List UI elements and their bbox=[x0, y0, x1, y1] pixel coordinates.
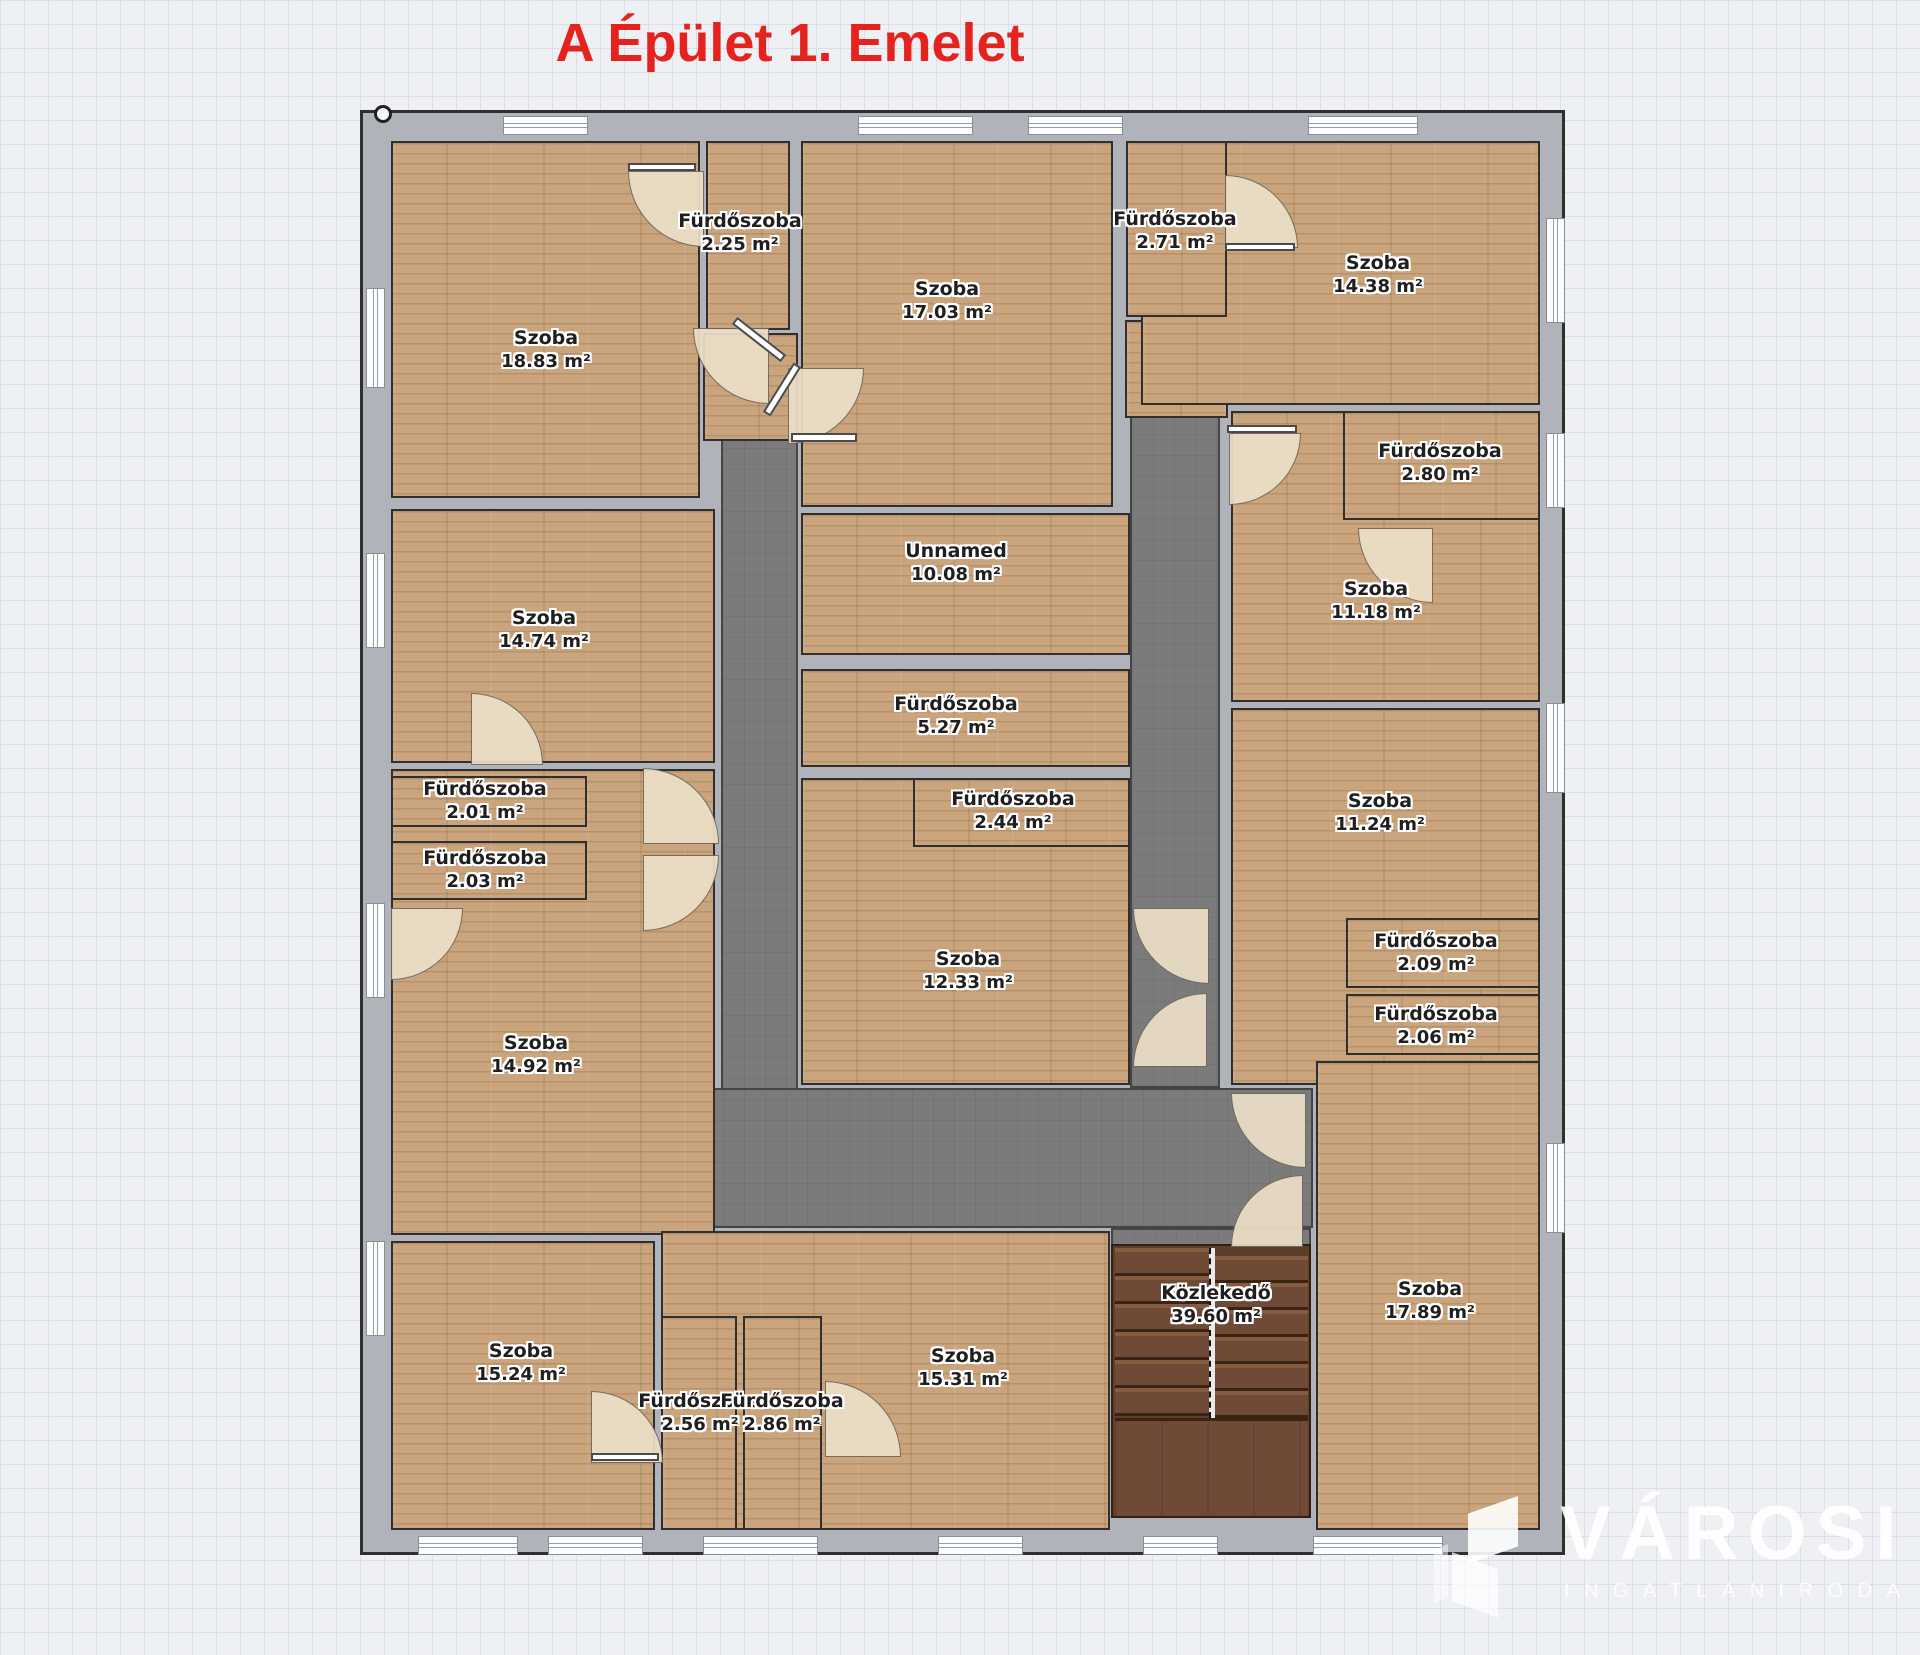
room-area: 10.08 m² bbox=[905, 564, 1007, 587]
room-label-szoba-15-31: Szoba15.31 m² bbox=[918, 1345, 1008, 1391]
room-label-szoba-11-24: Szoba11.24 m² bbox=[1335, 790, 1425, 836]
window bbox=[1546, 218, 1565, 323]
corridor bbox=[1130, 413, 1220, 1088]
stair-divider bbox=[1209, 1248, 1215, 1418]
room-area: 2.86 m² bbox=[720, 1414, 843, 1437]
room-area: 2.25 m² bbox=[678, 234, 801, 257]
room-area: 5.27 m² bbox=[894, 717, 1017, 740]
room-area: 14.92 m² bbox=[491, 1056, 581, 1079]
room-label-kozlekedo: Közlekedő39.60 m² bbox=[1161, 1282, 1271, 1328]
room-name: Fürdőszoba bbox=[1378, 440, 1501, 464]
room-name: Szoba bbox=[1385, 1278, 1475, 1302]
door-leaf bbox=[591, 1453, 659, 1461]
watermark-subtitle: INGATLANIRODA bbox=[1564, 1580, 1914, 1603]
watermark: VÁROSI INGATLANIRODA bbox=[1432, 1488, 1902, 1638]
room-name: Szoba bbox=[499, 607, 589, 631]
room-area: 17.03 m² bbox=[902, 302, 992, 325]
window bbox=[1313, 1536, 1443, 1555]
room-label-szoba-12-33: Szoba12.33 m² bbox=[923, 948, 1013, 994]
room-name: Szoba bbox=[902, 278, 992, 302]
room-area: 12.33 m² bbox=[923, 972, 1013, 995]
room-area: 14.38 m² bbox=[1333, 276, 1423, 299]
floorplan-canvas: A Épület 1. Emelet Szoba18.83 m²Fürdőszo… bbox=[0, 0, 1920, 1655]
room-name: Szoba bbox=[923, 948, 1013, 972]
window bbox=[1546, 433, 1565, 508]
watermark-logo-icon bbox=[1434, 1544, 1448, 1604]
origin-marker bbox=[374, 105, 392, 123]
corridor bbox=[658, 1088, 1313, 1228]
room-area: 2.80 m² bbox=[1378, 464, 1501, 487]
room-name: Szoba bbox=[1335, 790, 1425, 814]
stair-tread bbox=[1115, 1360, 1209, 1388]
room-label-szoba-15-24: Szoba15.24 m² bbox=[476, 1340, 566, 1386]
room-label-furdoszoba-2-71: Fürdőszoba2.71 m² bbox=[1113, 208, 1236, 254]
room-name: Fürdőszoba bbox=[720, 1390, 843, 1414]
door-leaf bbox=[628, 163, 696, 171]
stair-tread bbox=[1115, 1248, 1209, 1276]
room-area: 2.44 m² bbox=[951, 812, 1074, 835]
room-name: Szoba bbox=[501, 327, 591, 351]
room-label-furdoszoba-2-03: Fürdőszoba2.03 m² bbox=[423, 847, 546, 893]
room-label-szoba-17-03: Szoba17.03 m² bbox=[902, 278, 992, 324]
room-name: Fürdőszoba bbox=[1374, 930, 1497, 954]
floorplan: Szoba18.83 m²Fürdőszoba2.25 m²Szoba17.03… bbox=[360, 110, 1565, 1555]
room-label-szoba-18-83: Szoba18.83 m² bbox=[501, 327, 591, 373]
window bbox=[858, 116, 973, 135]
stair-tread bbox=[1215, 1391, 1308, 1418]
window bbox=[703, 1536, 818, 1555]
room-label-furdoszoba-2-09: Fürdőszoba2.09 m² bbox=[1374, 930, 1497, 976]
window bbox=[366, 903, 385, 998]
room-area: 15.24 m² bbox=[476, 1364, 566, 1387]
window bbox=[418, 1536, 518, 1555]
window bbox=[366, 1241, 385, 1336]
page-title: A Épület 1. Emelet bbox=[340, 12, 1240, 74]
room-name: Közlekedő bbox=[1161, 1282, 1271, 1306]
room-label-szoba-11-18: Szoba11.18 m² bbox=[1331, 578, 1421, 624]
room-area: 15.31 m² bbox=[918, 1369, 1008, 1392]
room-label-furdoszoba-2-01: Fürdőszoba2.01 m² bbox=[423, 778, 546, 824]
room-area: 18.83 m² bbox=[501, 351, 591, 374]
window bbox=[503, 116, 588, 135]
room-name: Szoba bbox=[918, 1345, 1008, 1369]
room-name: Szoba bbox=[491, 1032, 581, 1056]
watermark-logo-icon bbox=[1452, 1552, 1498, 1618]
stair-tread bbox=[1215, 1337, 1308, 1364]
stair-tread bbox=[1115, 1332, 1209, 1360]
window bbox=[1546, 1143, 1565, 1233]
stair-tread bbox=[1215, 1364, 1308, 1391]
door-leaf bbox=[1227, 425, 1297, 433]
room-area: 14.74 m² bbox=[499, 631, 589, 654]
room-label-szoba-17-89: Szoba17.89 m² bbox=[1385, 1278, 1475, 1324]
window bbox=[366, 288, 385, 388]
room-label-unnamed-10-08: Unnamed10.08 m² bbox=[905, 540, 1007, 586]
window bbox=[548, 1536, 643, 1555]
room-name: Fürdőszoba bbox=[423, 778, 546, 802]
room-label-furdoszoba-2-80: Fürdőszoba2.80 m² bbox=[1378, 440, 1501, 486]
room-area: 2.06 m² bbox=[1374, 1027, 1497, 1050]
room-area: 2.03 m² bbox=[423, 871, 546, 894]
window bbox=[366, 553, 385, 648]
room-name: Unnamed bbox=[905, 540, 1007, 564]
watermark-brand: VÁROSI bbox=[1560, 1490, 1905, 1577]
room-label-szoba-14-38: Szoba14.38 m² bbox=[1333, 252, 1423, 298]
window bbox=[938, 1536, 1023, 1555]
window bbox=[1028, 116, 1123, 135]
room-area: 2.71 m² bbox=[1113, 232, 1236, 255]
room-name: Fürdőszoba bbox=[951, 788, 1074, 812]
room-name: Szoba bbox=[1331, 578, 1421, 602]
room-area: 2.09 m² bbox=[1374, 954, 1497, 977]
room-label-furdoszoba-5-27: Fürdőszoba5.27 m² bbox=[894, 693, 1017, 739]
room-label-furdoszoba-2-06: Fürdőszoba2.06 m² bbox=[1374, 1003, 1497, 1049]
room-label-furdoszoba-2-86: Fürdőszoba2.86 m² bbox=[720, 1390, 843, 1436]
room-area: 39.60 m² bbox=[1161, 1306, 1271, 1329]
room-name: Szoba bbox=[476, 1340, 566, 1364]
room-label-szoba-14-74: Szoba14.74 m² bbox=[499, 607, 589, 653]
room-area: 17.89 m² bbox=[1385, 1302, 1475, 1325]
room-name: Fürdőszoba bbox=[894, 693, 1017, 717]
room-area: 2.01 m² bbox=[423, 802, 546, 825]
room-area: 11.24 m² bbox=[1335, 814, 1425, 837]
stair-tread bbox=[1215, 1256, 1308, 1283]
stair-tread bbox=[1115, 1388, 1209, 1416]
room-name: Fürdőszoba bbox=[678, 210, 801, 234]
room-name: Fürdőszoba bbox=[423, 847, 546, 871]
watermark-logo-icon bbox=[1468, 1496, 1518, 1564]
stair-landing bbox=[1115, 1418, 1308, 1516]
room-name: Fürdőszoba bbox=[1374, 1003, 1497, 1027]
room-label-szoba-14-92: Szoba14.92 m² bbox=[491, 1032, 581, 1078]
room-name: Fürdőszoba bbox=[1113, 208, 1236, 232]
window bbox=[1143, 1536, 1218, 1555]
window bbox=[1308, 116, 1418, 135]
window bbox=[1546, 703, 1565, 793]
room-label-furdoszoba-2-44: Fürdőszoba2.44 m² bbox=[951, 788, 1074, 834]
door-leaf bbox=[791, 433, 857, 442]
room-name: Szoba bbox=[1333, 252, 1423, 276]
room-label-furdoszoba-2-25: Fürdőszoba2.25 m² bbox=[678, 210, 801, 256]
room-area: 11.18 m² bbox=[1331, 602, 1421, 625]
